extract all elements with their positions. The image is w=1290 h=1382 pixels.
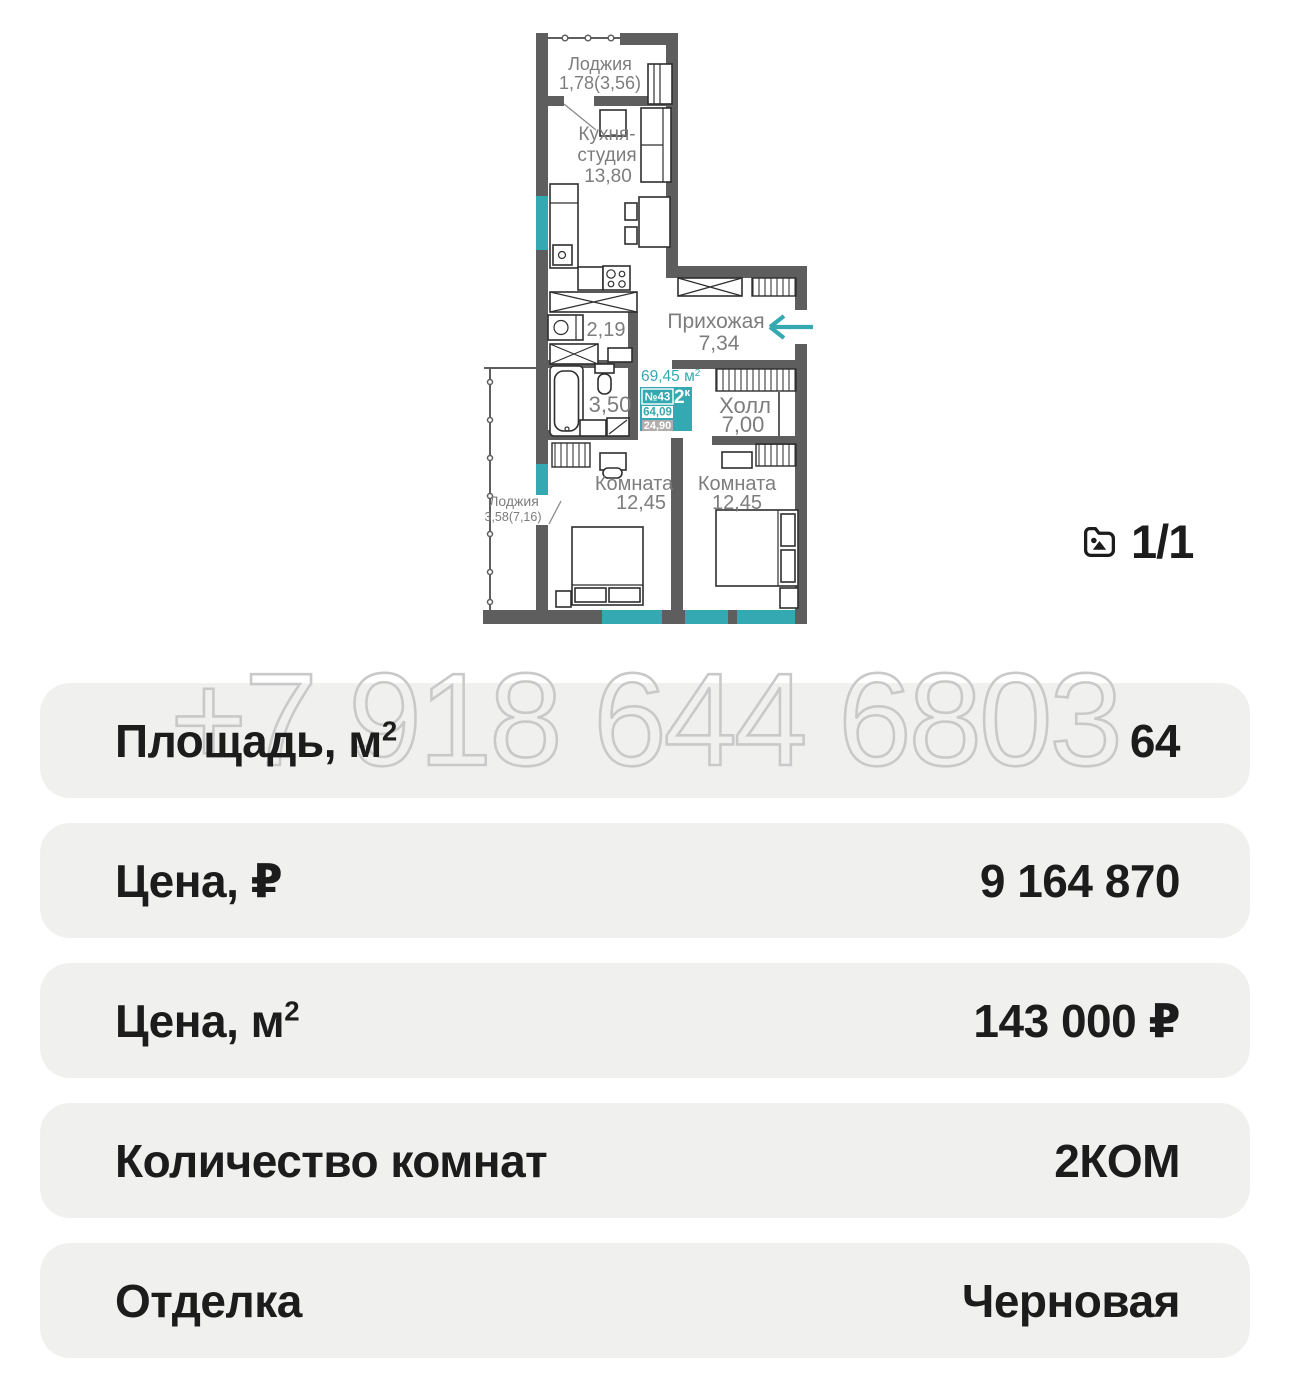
detail-row-rooms: Количество комнат 2КОМ [40, 1103, 1250, 1218]
badge-area-value: 64,09 [643, 407, 672, 419]
detail-row-price-per-m2: Цена, м2 143 000 ₽ [40, 963, 1250, 1078]
photo-counter: 1/1 [1081, 514, 1193, 569]
detail-label: Цена, ₽ [115, 854, 282, 908]
floor-plan: Лоджия 1,78(3,56) Кухня- студия 13,80 2,… [483, 28, 813, 624]
photo-counter-label: 1/1 [1131, 514, 1193, 569]
label-loggia-top: Лоджия [568, 54, 632, 74]
detail-value: 2КОМ [1054, 1134, 1180, 1188]
label-kitchen-area: 13,80 [584, 166, 632, 187]
badge-living-area: 24,90 [644, 420, 672, 432]
detail-label: Площадь, м2 [115, 714, 397, 768]
label-hallway: Прихожая [667, 310, 764, 333]
detail-label: Отделка [115, 1274, 302, 1328]
detail-value: 9 164 870 [980, 854, 1180, 908]
detail-value: 143 000 ₽ [973, 994, 1180, 1048]
label-bathroom-area: 3,50 [589, 392, 632, 417]
label-bedroom-right-area: 12,45 [712, 492, 762, 514]
image-icon [1081, 523, 1118, 560]
badge-unit-number: №43 [645, 392, 671, 404]
unit-badge: 69,45 м2 №43 2к 64,09 24,90 [640, 368, 701, 432]
detail-value: Черновая [962, 1274, 1180, 1328]
floor-plan-photo[interactable]: Лоджия 1,78(3,56) Кухня- студия 13,80 2,… [483, 28, 813, 624]
detail-value: 64 [1130, 714, 1180, 768]
detail-row-finishing: Отделка Черновая [40, 1243, 1250, 1358]
detail-row-area: Площадь, м2 64 [40, 683, 1250, 798]
label-hall-area: 7,00 [722, 412, 765, 437]
detail-row-price: Цена, ₽ 9 164 870 [40, 823, 1250, 938]
badge-total-area: 69,45 м2 [641, 368, 701, 385]
label-loggia-left: Лоджия [489, 493, 539, 509]
detail-label: Цена, м2 [115, 994, 299, 1048]
label-kitchen-1: Кухня- [578, 124, 635, 145]
label-loggia-left-area: 3,58(7,16) [485, 510, 542, 524]
detail-label: Количество комнат [115, 1134, 547, 1188]
label-bedroom-left-area: 12,45 [616, 492, 666, 514]
label-kitchen-2: студия [577, 145, 636, 166]
entrance-arrow [770, 316, 813, 338]
label-nook-area: 2,19 [587, 319, 626, 341]
label-loggia-top-area: 1,78(3,56) [559, 73, 641, 93]
label-hallway-area: 7,34 [699, 332, 740, 355]
